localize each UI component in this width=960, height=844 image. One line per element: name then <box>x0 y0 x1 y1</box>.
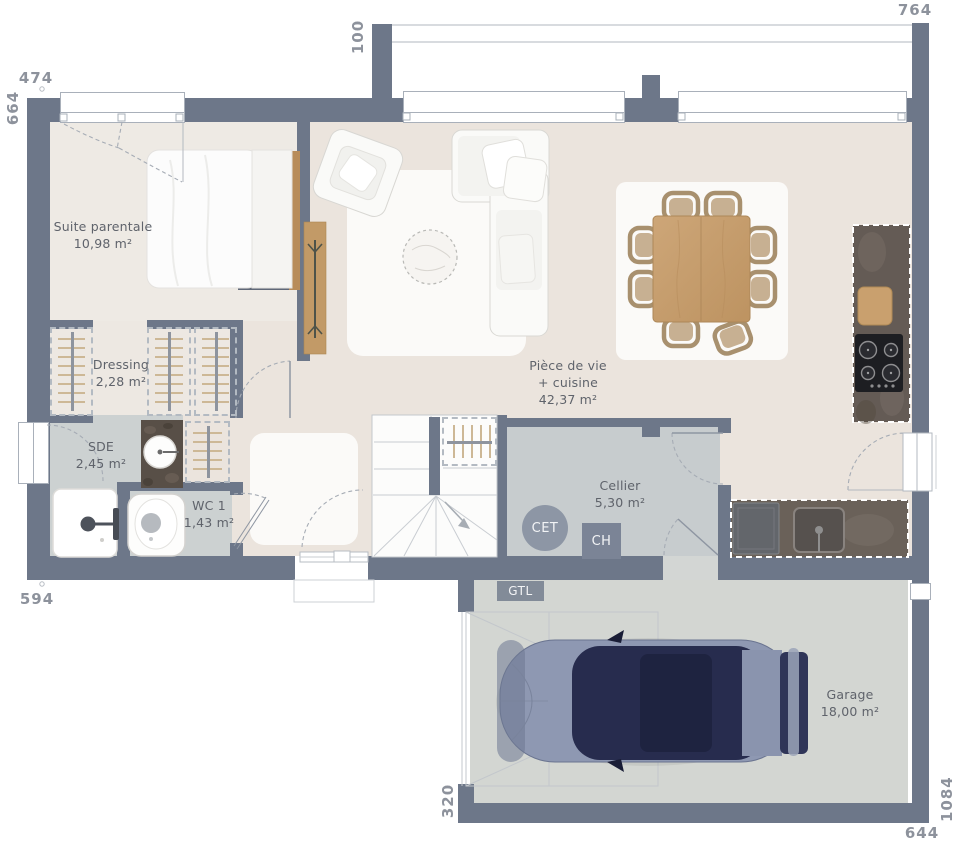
coffee-table <box>403 230 457 284</box>
entry-door-arc <box>302 490 363 547</box>
room-label-suite: Suite parentale 10,98 m² <box>33 218 173 252</box>
room-name: Garage <box>810 686 890 703</box>
dimension-top-left: 474 <box>14 69 58 87</box>
toilet-lid <box>141 513 161 533</box>
stairs-closet <box>442 417 497 466</box>
room-name: Suite parentale <box>33 218 173 235</box>
wardrobe <box>194 327 237 416</box>
entry-door <box>294 551 374 602</box>
room-name: Dressing <box>61 356 181 373</box>
room-label-sde: SDE 2,45 m² <box>61 438 141 472</box>
dimension-garage-bottom: 644 <box>900 824 944 842</box>
sofa-throw <box>498 234 535 284</box>
room-name: Pièce de vie <box>508 357 628 374</box>
shower-bar <box>113 508 119 540</box>
cutting-board <box>858 287 892 325</box>
wardrobe <box>185 421 230 483</box>
ch-label: CH <box>592 534 612 549</box>
faucet <box>815 526 823 534</box>
window-marks <box>60 113 905 121</box>
room-area: 2,28 m² <box>61 373 181 390</box>
terrace-outline <box>392 25 912 42</box>
room-label-cellier: Cellier 5,30 m² <box>580 477 660 511</box>
living-door-panel <box>903 433 936 491</box>
room-area: 42,37 m² <box>508 391 628 408</box>
gtl-box: GTL <box>497 581 544 601</box>
room-name: + cuisine <box>508 374 628 391</box>
bedroom-window-arc <box>64 124 119 148</box>
dimension-left: 664 <box>4 86 20 130</box>
suite-door-arc <box>236 361 290 418</box>
dimension-right: 1084 <box>938 778 954 822</box>
shower-head <box>81 517 96 532</box>
room-label-garage: Garage 18,00 m² <box>810 686 890 720</box>
dining-chair <box>748 228 775 262</box>
stair-railing <box>429 417 440 495</box>
dim-tick-bottom-left <box>40 582 44 586</box>
dimension-bottom-left: 594 <box>15 590 59 608</box>
floor-plan: CET CH GTL Suite parentale 10,98 m² Dres… <box>0 0 960 844</box>
room-name: WC 1 <box>169 497 249 514</box>
water-heater-cet: CET <box>522 505 568 551</box>
room-label-wc1: WC 1 1,43 m² <box>169 497 249 531</box>
gtl-label: GTL <box>508 584 532 598</box>
room-name: Cellier <box>580 477 660 494</box>
dim-tick-top-left <box>40 87 44 91</box>
room-area: 2,45 m² <box>61 455 141 472</box>
armchair <box>310 126 406 220</box>
cellier-garage-door-arc <box>664 519 678 555</box>
room-area: 5,30 m² <box>580 494 660 511</box>
dimension-garage-left: 320 <box>439 779 455 823</box>
kitchen-sink <box>794 508 844 552</box>
dimension-top-right: 764 <box>893 1 937 19</box>
sofa <box>452 130 549 336</box>
wall-shelf <box>304 222 326 354</box>
dining-chair <box>748 272 775 306</box>
room-area: 1,43 m² <box>169 514 249 531</box>
room-area: 10,98 m² <box>33 235 173 252</box>
room-name: SDE <box>61 438 141 455</box>
room-label-dressing: Dressing 2,28 m² <box>61 356 181 390</box>
kitchen-counter-bottom <box>731 500 908 557</box>
car <box>496 630 808 772</box>
dimension-porch: 100 <box>349 15 365 59</box>
room-area: 18,00 m² <box>810 703 890 720</box>
cooktop <box>855 334 903 392</box>
sofa-cushion <box>502 155 547 202</box>
dining-chair <box>712 319 753 356</box>
cellier-door-arc <box>672 433 723 484</box>
boiler-ch: CH <box>582 523 621 559</box>
sde-vanity <box>141 420 183 488</box>
dining-chair <box>664 319 698 346</box>
kitchen-appliance <box>733 503 779 554</box>
living-door-arc <box>848 433 905 490</box>
shower <box>53 489 119 557</box>
room-label-living: Pièce de vie + cuisine 42,37 m² <box>508 357 628 408</box>
cet-label: CET <box>532 521 559 536</box>
kitchen-counter-right <box>853 225 910 424</box>
cellier-garage-door-leaf <box>678 519 718 555</box>
dining-set <box>630 193 775 356</box>
